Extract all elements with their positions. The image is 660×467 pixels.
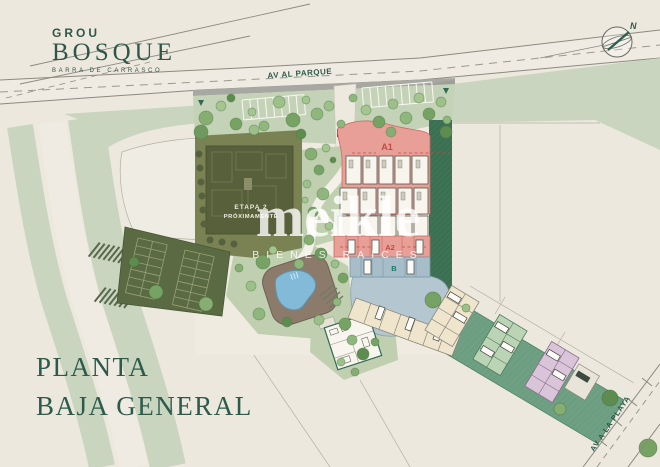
compass-north-label: N: [630, 21, 637, 31]
plan-title: PLANTA BAJA GENERAL: [36, 348, 253, 426]
plan-title-line2: BAJA GENERAL: [36, 387, 253, 426]
building-a2: [334, 236, 430, 257]
building-a2-label: A2: [385, 243, 395, 252]
logo-name: BOSQUE: [52, 40, 176, 66]
site-plan-page: N AV AL PARQUE A1 A2 B ETAPA 2 PRÓXIMAME…: [0, 0, 660, 467]
building-a1-label: A1: [381, 142, 393, 152]
logo-brand: GROU: [52, 26, 176, 40]
logo-tagline: BARRA DE CARRASCO: [52, 68, 176, 74]
project-logo: GROU BOSQUE BARRA DE CARRASCO: [52, 26, 176, 74]
plan-title-line1: PLANTA: [36, 348, 253, 387]
stage2-label-line1: ETAPA 2: [234, 204, 267, 211]
stage2-label-line2: PRÓXIMAMENTE: [224, 212, 279, 220]
hedge-east: [429, 120, 452, 302]
building-b: [350, 257, 430, 277]
corner-parcel: [120, 138, 205, 240]
building-b-label: B: [391, 264, 397, 273]
